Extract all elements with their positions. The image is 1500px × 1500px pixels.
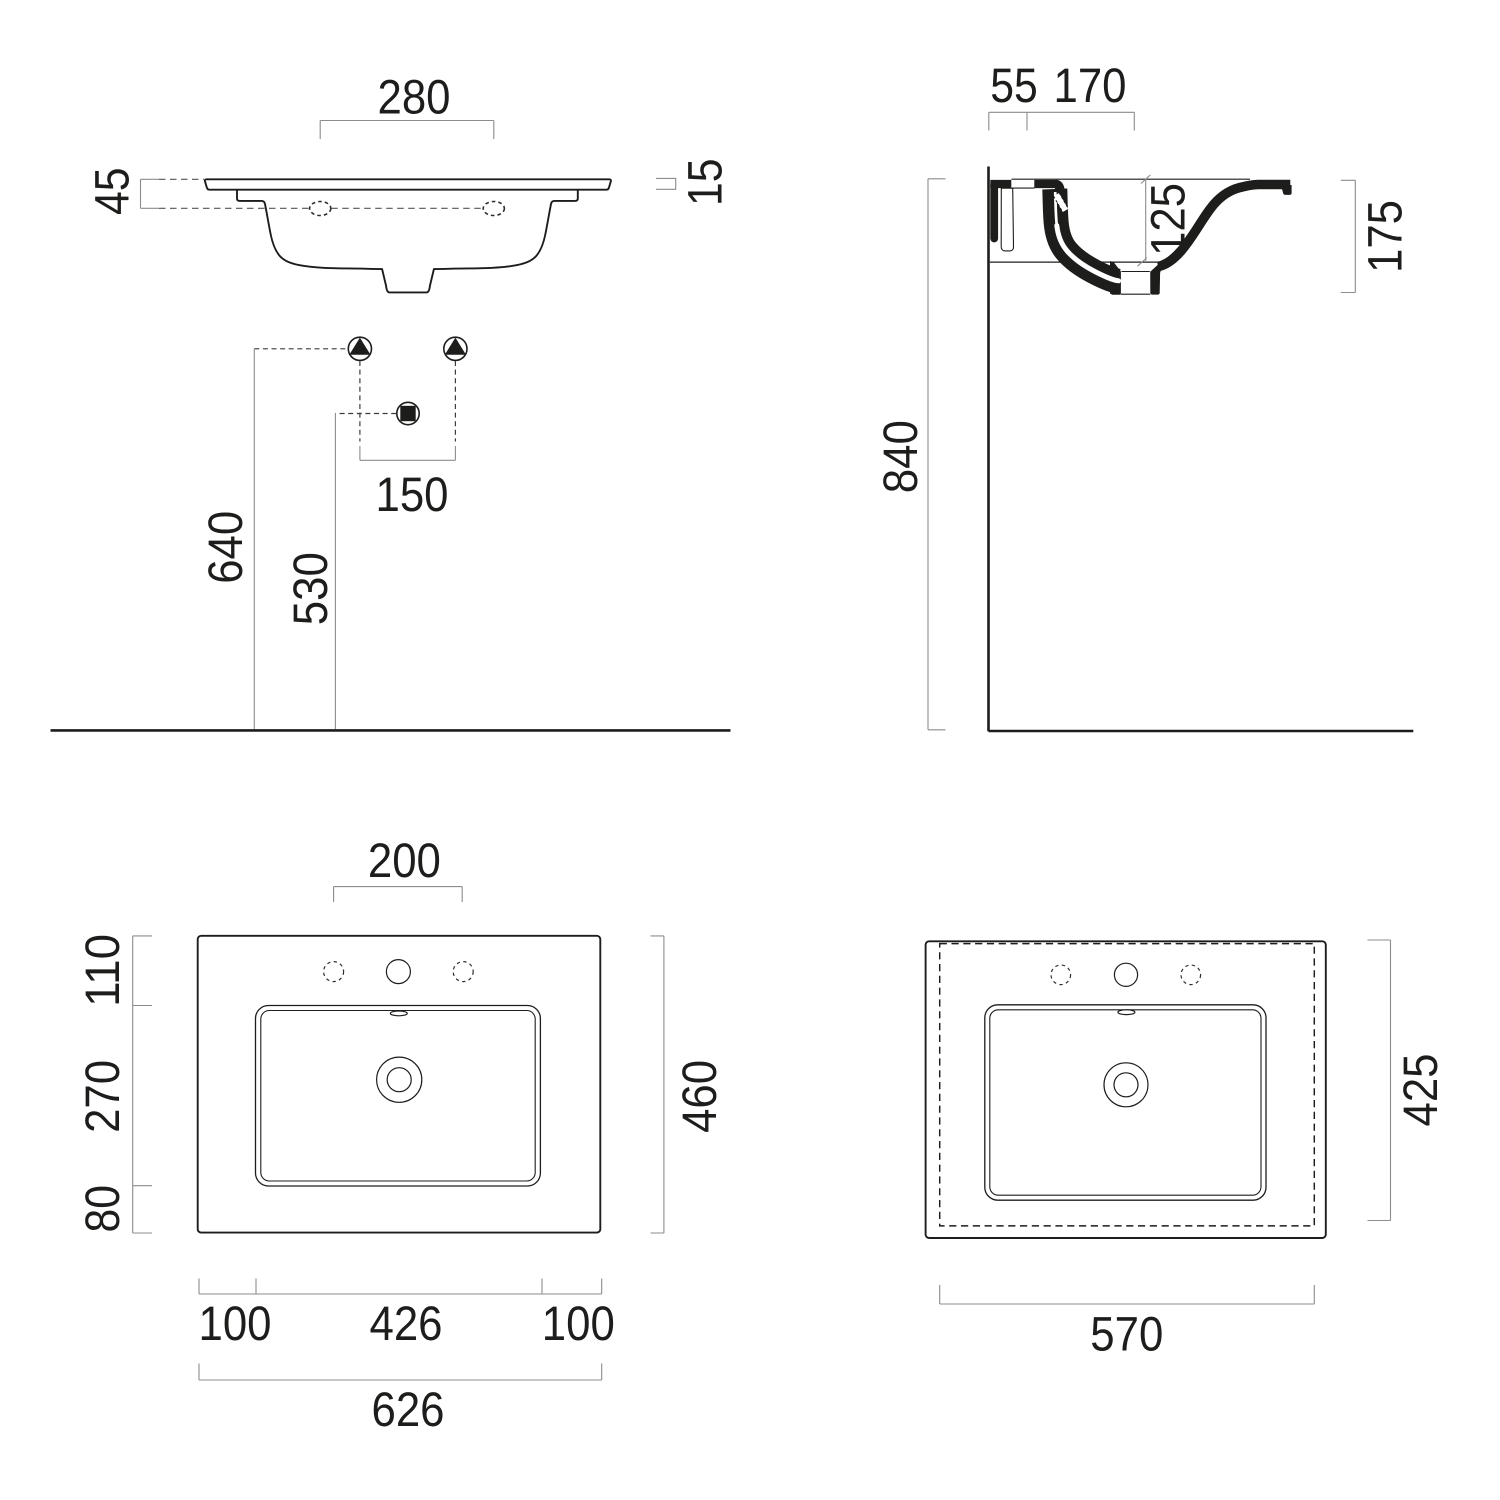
svg-text:55: 55 bbox=[990, 59, 1038, 113]
svg-text:530: 530 bbox=[284, 552, 338, 625]
svg-text:280: 280 bbox=[378, 71, 451, 125]
svg-text:100: 100 bbox=[199, 1297, 272, 1351]
svg-text:640: 640 bbox=[199, 511, 253, 584]
svg-text:110: 110 bbox=[76, 934, 130, 1007]
svg-text:15: 15 bbox=[679, 159, 733, 207]
svg-text:570: 570 bbox=[1090, 1308, 1163, 1362]
svg-text:175: 175 bbox=[1358, 200, 1412, 273]
svg-text:45: 45 bbox=[85, 168, 139, 216]
svg-text:840: 840 bbox=[874, 420, 928, 493]
svg-text:125: 125 bbox=[1142, 183, 1196, 256]
svg-text:80: 80 bbox=[76, 1185, 130, 1233]
svg-text:150: 150 bbox=[376, 468, 449, 522]
svg-text:460: 460 bbox=[673, 1060, 727, 1133]
svg-text:425: 425 bbox=[1394, 1054, 1448, 1127]
svg-text:100: 100 bbox=[542, 1297, 615, 1351]
svg-text:170: 170 bbox=[1054, 59, 1127, 113]
svg-text:426: 426 bbox=[370, 1297, 443, 1351]
svg-text:270: 270 bbox=[76, 1060, 130, 1133]
svg-text:626: 626 bbox=[372, 1383, 445, 1437]
svg-text:200: 200 bbox=[368, 834, 441, 888]
